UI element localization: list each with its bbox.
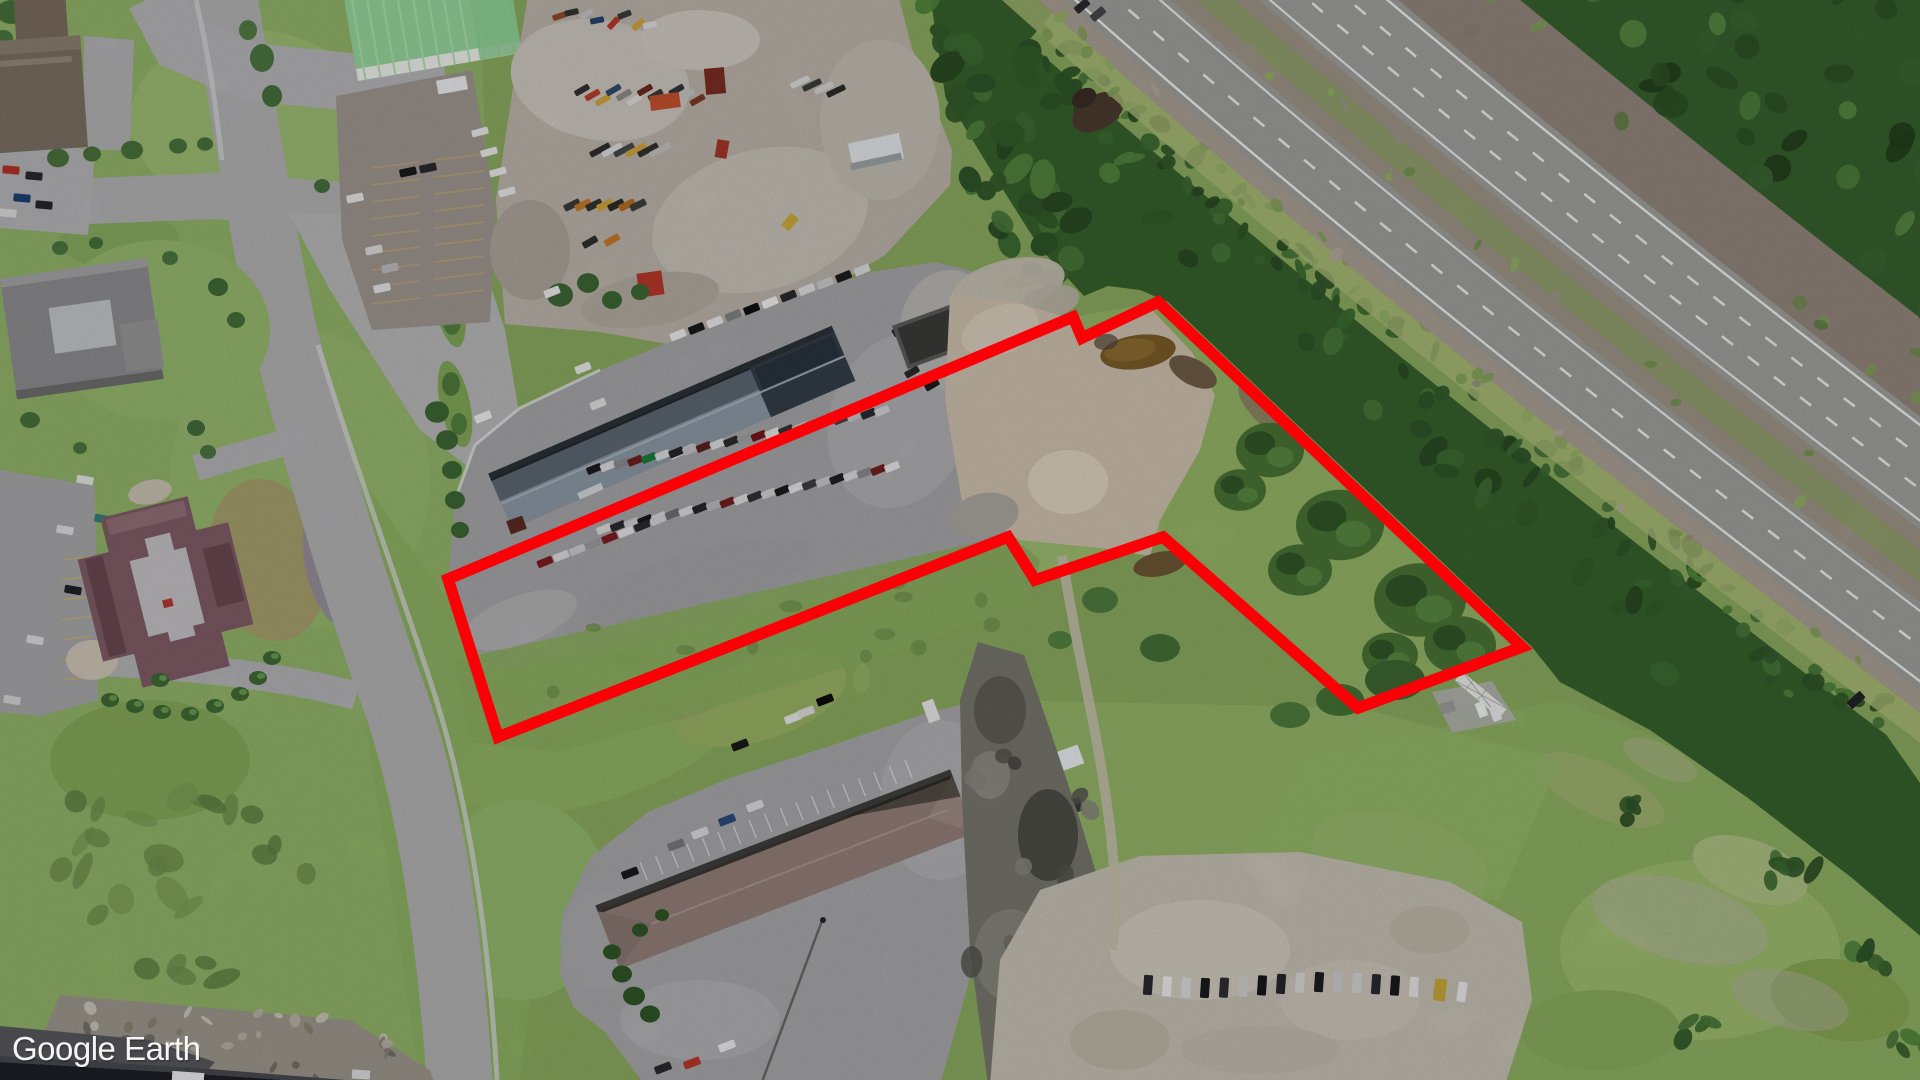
svg-text:Google Earth: Google Earth <box>12 1030 200 1067</box>
